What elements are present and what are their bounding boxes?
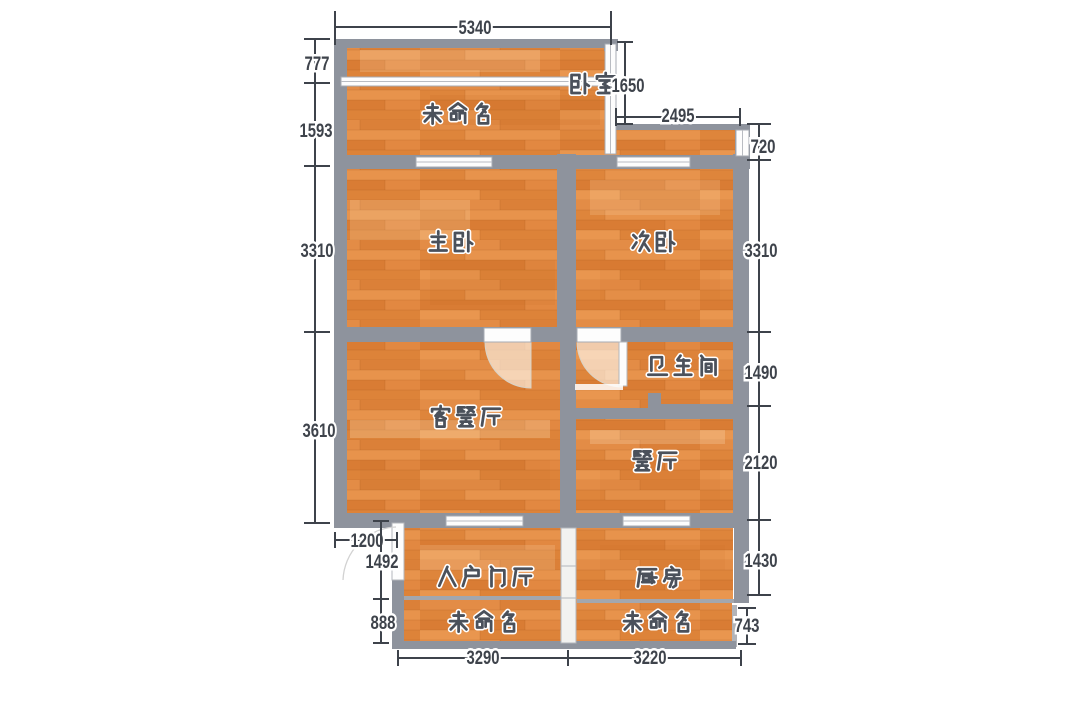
svg-text:2120: 2120 [745, 452, 778, 474]
svg-text:2495: 2495 [662, 105, 695, 127]
svg-text:3310: 3310 [301, 240, 334, 262]
svg-text:1200: 1200 [351, 530, 384, 552]
svg-text:1650: 1650 [612, 75, 645, 97]
svg-text:1593: 1593 [300, 120, 333, 142]
svg-text:3290: 3290 [467, 647, 500, 669]
svg-text:1490: 1490 [745, 362, 778, 384]
svg-text:3610: 3610 [303, 420, 336, 442]
svg-text:743: 743 [735, 615, 760, 637]
svg-text:888: 888 [371, 612, 396, 634]
svg-text:3220: 3220 [634, 647, 667, 669]
svg-text:777: 777 [305, 53, 330, 75]
svg-text:5340: 5340 [459, 17, 492, 39]
svg-text:1492: 1492 [366, 551, 399, 573]
svg-text:3310: 3310 [745, 240, 778, 262]
svg-text:720: 720 [751, 136, 776, 158]
svg-text:1430: 1430 [745, 550, 778, 572]
